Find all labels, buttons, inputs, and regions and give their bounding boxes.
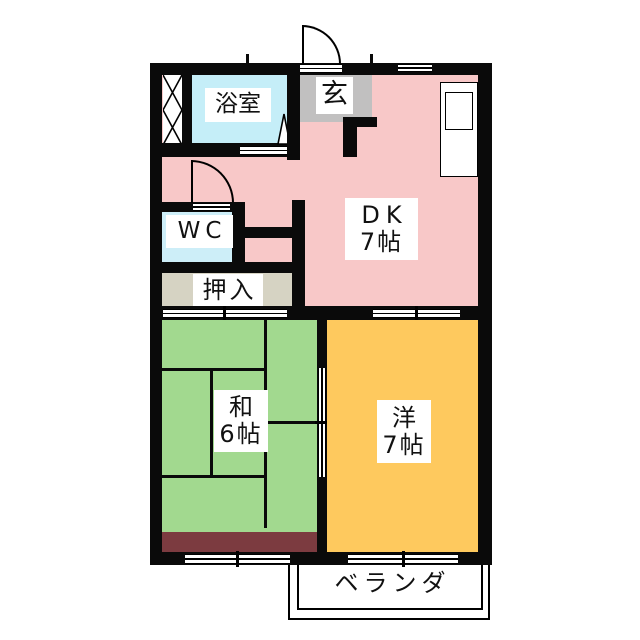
tatami-line (210, 370, 213, 477)
wc-door-threshold (193, 203, 230, 211)
bathroom-door (240, 146, 290, 155)
wall (150, 262, 292, 273)
top-window (398, 64, 432, 72)
entrance-threshold (300, 64, 342, 73)
dk-label: DK 7帖 (345, 198, 418, 260)
closet-fusuma-door (163, 309, 287, 318)
tatami-line (266, 421, 317, 424)
wall (245, 227, 292, 238)
wall-tick (370, 54, 373, 64)
hatch-x-icon (163, 75, 182, 145)
kitchen-counter (440, 82, 478, 177)
japanese-room-label: 和 6帖 (214, 390, 268, 452)
entrance-label: 玄 (316, 77, 353, 114)
bathroom-label: 浴室 (205, 88, 271, 122)
western-room-label: 洋 7帖 (377, 400, 431, 463)
pipe-space-hatch (163, 75, 182, 145)
wall (292, 200, 305, 320)
bottom-window-right (348, 554, 458, 564)
wall (232, 202, 245, 262)
tatami-edge-strip (162, 532, 317, 552)
kitchen-sink-icon (445, 92, 473, 130)
wall (343, 117, 377, 127)
wall (343, 127, 357, 157)
wall (287, 63, 300, 160)
closet-label: 押入 (193, 274, 263, 306)
room-divider-sliding-door (318, 368, 326, 477)
dk-western-sliding-door (373, 309, 460, 318)
floor-plan: 浴室 玄 WC 押入 DK 7帖 和 6帖 洋 7帖 ベランダ (0, 0, 640, 640)
wc-label: WC (166, 215, 233, 248)
wall (182, 75, 192, 145)
entrance-door-arc-icon (302, 25, 341, 64)
wall-tick (246, 54, 249, 64)
veranda-label: ベランダ (320, 566, 460, 600)
bottom-window-left (185, 554, 290, 564)
tatami-line (162, 368, 266, 371)
tatami-line (162, 475, 266, 478)
